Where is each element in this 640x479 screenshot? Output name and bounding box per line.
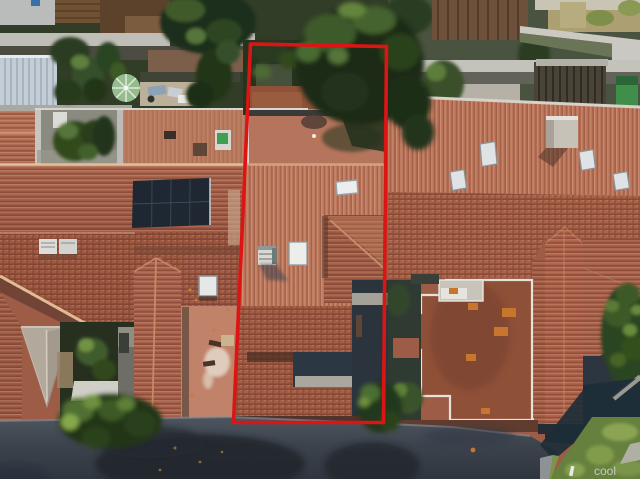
svg-text:cool: cool	[594, 464, 616, 478]
